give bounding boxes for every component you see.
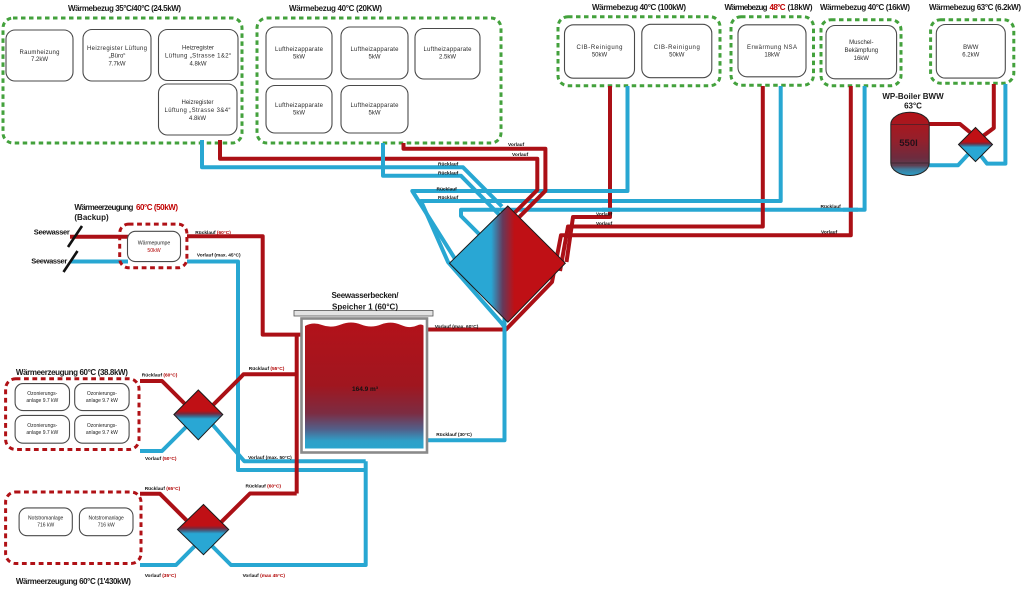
svg-text:Ozonierungs-: Ozonierungs-	[27, 423, 57, 429]
svg-text:Rücklauf: Rücklauf	[821, 204, 842, 210]
svg-text:Rücklauf (65°C): Rücklauf (65°C)	[145, 486, 181, 492]
svg-text:Luftheizapparate: Luftheizapparate	[351, 47, 400, 53]
svg-text:Lüftung „Strasse 3&4“: Lüftung „Strasse 3&4“	[165, 108, 231, 114]
svg-text:Wärmebezug 63°C (6.2kW): Wärmebezug 63°C (6.2kW)	[929, 3, 1021, 12]
svg-text:Rücklauf: Rücklauf	[438, 171, 459, 177]
svg-text:50kW: 50kW	[669, 53, 685, 59]
svg-text:Vorlauf (max. 60°C): Vorlauf (max. 60°C)	[435, 324, 479, 330]
svg-text:7.2kW: 7.2kW	[31, 57, 48, 63]
svg-text:Heizregister Lüftung: Heizregister Lüftung	[87, 46, 147, 52]
svg-text:Ozonierungs-: Ozonierungs-	[87, 423, 117, 429]
svg-text:Luftheizapparate: Luftheizapparate	[275, 103, 324, 109]
svg-text:5kW: 5kW	[369, 55, 381, 61]
svg-text:Vorlauf (max. 50°C): Vorlauf (max. 50°C)	[248, 455, 292, 461]
svg-text:Notstromanlage: Notstromanlage	[28, 516, 64, 522]
svg-text:Wärmebezug 35°C/40°C (24.5kW): Wärmebezug 35°C/40°C (24.5kW)	[68, 4, 181, 13]
svg-text:Rücklauf: Rücklauf	[438, 195, 459, 201]
svg-text:Rücklauf (30°C): Rücklauf (30°C)	[436, 432, 472, 438]
svg-text:Rücklauf: Rücklauf	[437, 186, 458, 192]
svg-text:Raumheizung: Raumheizung	[20, 50, 60, 56]
svg-text:anlage 9.7 kW: anlage 9.7 kW	[26, 430, 58, 436]
svg-text:Vorlauf: Vorlauf	[821, 230, 838, 236]
svg-text:Wärmebezug 40°C (16kW): Wärmebezug 40°C (16kW)	[820, 3, 910, 12]
svg-text:5kW: 5kW	[293, 55, 305, 61]
svg-text:Heizregister: Heizregister	[181, 100, 213, 106]
svg-text:550l: 550l	[899, 138, 918, 149]
svg-text:BWW: BWW	[963, 45, 979, 51]
svg-text:WP-Boiler BWW: WP-Boiler BWW	[882, 92, 944, 101]
svg-text:716 kW: 716 kW	[37, 523, 54, 529]
svg-text:50kW: 50kW	[147, 248, 160, 254]
svg-text:Wärmebezug: Wärmebezug	[725, 3, 768, 12]
svg-text:Vorlauf: Vorlauf	[508, 142, 525, 148]
svg-text:4.8kW: 4.8kW	[189, 62, 206, 68]
svg-text:Rücklauf (60°C): Rücklauf (60°C)	[246, 484, 282, 490]
svg-text:Wärmepumpe: Wärmepumpe	[138, 241, 171, 247]
svg-text:6.2kW: 6.2kW	[962, 53, 979, 59]
svg-text:Vorlauf: Vorlauf	[596, 221, 613, 227]
svg-text:Rücklauf (60°C): Rücklauf (60°C)	[142, 373, 178, 379]
svg-text:Luftheizapparate: Luftheizapparate	[275, 47, 324, 53]
svg-text:Wärmeerzeugung: Wärmeerzeugung	[74, 203, 133, 212]
svg-text:(Backup): (Backup)	[74, 213, 109, 222]
svg-text:„Büro“: „Büro“	[109, 54, 126, 60]
svg-text:Lüftung „Strasse 1&2“: Lüftung „Strasse 1&2“	[165, 54, 231, 60]
svg-text:716 kW: 716 kW	[98, 523, 115, 529]
svg-text:Seewasser: Seewasser	[31, 257, 67, 266]
svg-text:63°C: 63°C	[904, 102, 922, 111]
svg-text:60°C (50kW): 60°C (50kW)	[136, 203, 178, 212]
svg-text:2.5kW: 2.5kW	[439, 55, 456, 61]
svg-text:Rücklauf (60°C): Rücklauf (60°C)	[195, 230, 231, 236]
svg-text:CIB-Reinigung: CIB-Reinigung	[577, 45, 623, 51]
svg-text:anlage 9.7 kW: anlage 9.7 kW	[86, 430, 118, 436]
svg-text:Vorlauf: Vorlauf	[596, 212, 613, 218]
svg-text:Vorlauf: Vorlauf	[512, 152, 529, 158]
svg-text:Luftheizapparate: Luftheizapparate	[424, 47, 473, 53]
svg-text:Wärmeerzeugung 60°C (38.8kW): Wärmeerzeugung 60°C (38.8kW)	[16, 368, 128, 377]
svg-text:CIB-Reinigung: CIB-Reinigung	[654, 45, 700, 51]
svg-text:16kW: 16kW	[854, 56, 870, 62]
svg-text:Wärmebezug 40°C (100kW): Wärmebezug 40°C (100kW)	[592, 3, 686, 12]
svg-text:Vorlauf (35°C): Vorlauf (35°C)	[145, 573, 177, 579]
svg-text:5kW: 5kW	[369, 111, 381, 117]
svg-text:164.9 m³: 164.9 m³	[352, 386, 379, 393]
svg-text:7.7kW: 7.7kW	[108, 62, 125, 68]
svg-text:Notstromanlage: Notstromanlage	[89, 516, 125, 522]
svg-text:Speicher 1 (60°C): Speicher 1 (60°C)	[332, 303, 398, 312]
svg-text:Rücklauf: Rücklauf	[438, 162, 459, 168]
svg-text:Seewasserbecken/: Seewasserbecken/	[332, 291, 400, 300]
svg-text:Wärmebezug 40°C (20KW): Wärmebezug 40°C (20KW)	[289, 4, 382, 13]
svg-text:Vorlauf (50°C): Vorlauf (50°C)	[145, 456, 177, 462]
svg-text:48°C: 48°C	[770, 3, 786, 12]
svg-text:Vorlauf (max. 45°C): Vorlauf (max. 45°C)	[197, 253, 241, 259]
svg-text:Bekämpfung: Bekämpfung	[844, 48, 878, 54]
svg-text:Rücklauf (55°C): Rücklauf (55°C)	[249, 366, 285, 372]
svg-text:(18kW): (18kW)	[788, 3, 813, 12]
svg-text:5kW: 5kW	[293, 111, 305, 117]
svg-text:Muschel-: Muschel-	[849, 40, 873, 46]
svg-text:Ozonierungs-: Ozonierungs-	[27, 391, 57, 397]
svg-text:18kW: 18kW	[764, 53, 780, 59]
svg-text:4.8kW: 4.8kW	[189, 116, 206, 122]
svg-text:Seewasser: Seewasser	[34, 228, 70, 237]
svg-text:Wärmeerzeugung 60°C (1'430kW): Wärmeerzeugung 60°C (1'430kW)	[16, 577, 131, 586]
svg-text:Vorlauf (max 45°C): Vorlauf (max 45°C)	[243, 573, 286, 579]
svg-text:anlage 9.7 kW: anlage 9.7 kW	[26, 398, 58, 404]
svg-text:50kW: 50kW	[592, 53, 608, 59]
svg-text:Luftheizapparate: Luftheizapparate	[351, 103, 400, 109]
svg-text:anlage 9.7 kW: anlage 9.7 kW	[86, 398, 118, 404]
svg-text:Heizregister: Heizregister	[182, 46, 214, 52]
svg-text:Ozonierungs-: Ozonierungs-	[87, 391, 117, 397]
svg-text:Erwärmung NSA: Erwärmung NSA	[747, 45, 797, 51]
